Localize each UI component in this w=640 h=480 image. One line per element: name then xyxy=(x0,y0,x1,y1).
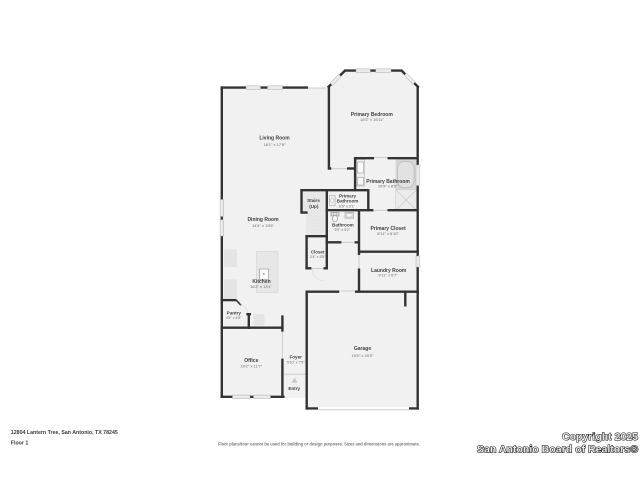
svg-text:13'3" x 16'11": 13'3" x 16'11" xyxy=(360,117,384,122)
svg-text:5'9" x 5'2": 5'9" x 5'2" xyxy=(334,228,350,232)
svg-text:Entry: Entry xyxy=(288,386,300,391)
svg-text:8'11" x 8'10": 8'11" x 8'10" xyxy=(377,231,399,236)
svg-text:Stairs: Stairs xyxy=(307,198,320,203)
svg-text:19'0" x 20'0": 19'0" x 20'0" xyxy=(352,353,375,358)
svg-text:16'2" x 13'1": 16'2" x 13'1" xyxy=(250,284,273,289)
svg-text:10'2" x 11'7": 10'2" x 11'7" xyxy=(240,363,262,368)
svg-text:Copyright 2025: Copyright 2025 xyxy=(562,431,638,443)
svg-text:Bathroom: Bathroom xyxy=(337,199,359,204)
svg-text:(Up): (Up) xyxy=(309,204,319,209)
svg-text:12804 Lantern Tree, San Antoni: 12804 Lantern Tree, San Antonio, TX 7824… xyxy=(11,430,118,436)
svg-text:San Antonio Board of Realtors®: San Antonio Board of Realtors® xyxy=(477,445,639,456)
svg-text:2'4" x 5'5": 2'4" x 5'5" xyxy=(310,255,326,259)
svg-text:Floor 1: Floor 1 xyxy=(11,440,29,446)
svg-text:4'5" x 4'6": 4'5" x 4'6" xyxy=(226,316,242,320)
svg-text:Garage: Garage xyxy=(354,346,371,352)
svg-text:10'9" x 8'5": 10'9" x 8'5" xyxy=(378,184,398,189)
svg-text:Bathroom: Bathroom xyxy=(332,222,354,227)
svg-text:Foyer: Foyer xyxy=(289,355,302,360)
svg-text:Pantry: Pantry xyxy=(227,311,242,316)
svg-text:6'6" x 3'1": 6'6" x 3'1" xyxy=(339,205,355,209)
svg-text:18'1" x 17'8": 18'1" x 17'8" xyxy=(264,142,287,147)
svg-text:14'4" x 19'6": 14'4" x 19'6" xyxy=(252,223,275,228)
svg-text:Floor plans/tour cannot be use: Floor plans/tour cannot be used for buil… xyxy=(218,442,420,447)
svg-text:Closet: Closet xyxy=(311,249,325,254)
svg-text:9'11" x 6'7": 9'11" x 6'7" xyxy=(378,272,398,277)
svg-text:Living Room: Living Room xyxy=(259,136,290,142)
svg-text:5'10" x 7'5": 5'10" x 7'5" xyxy=(287,360,305,364)
